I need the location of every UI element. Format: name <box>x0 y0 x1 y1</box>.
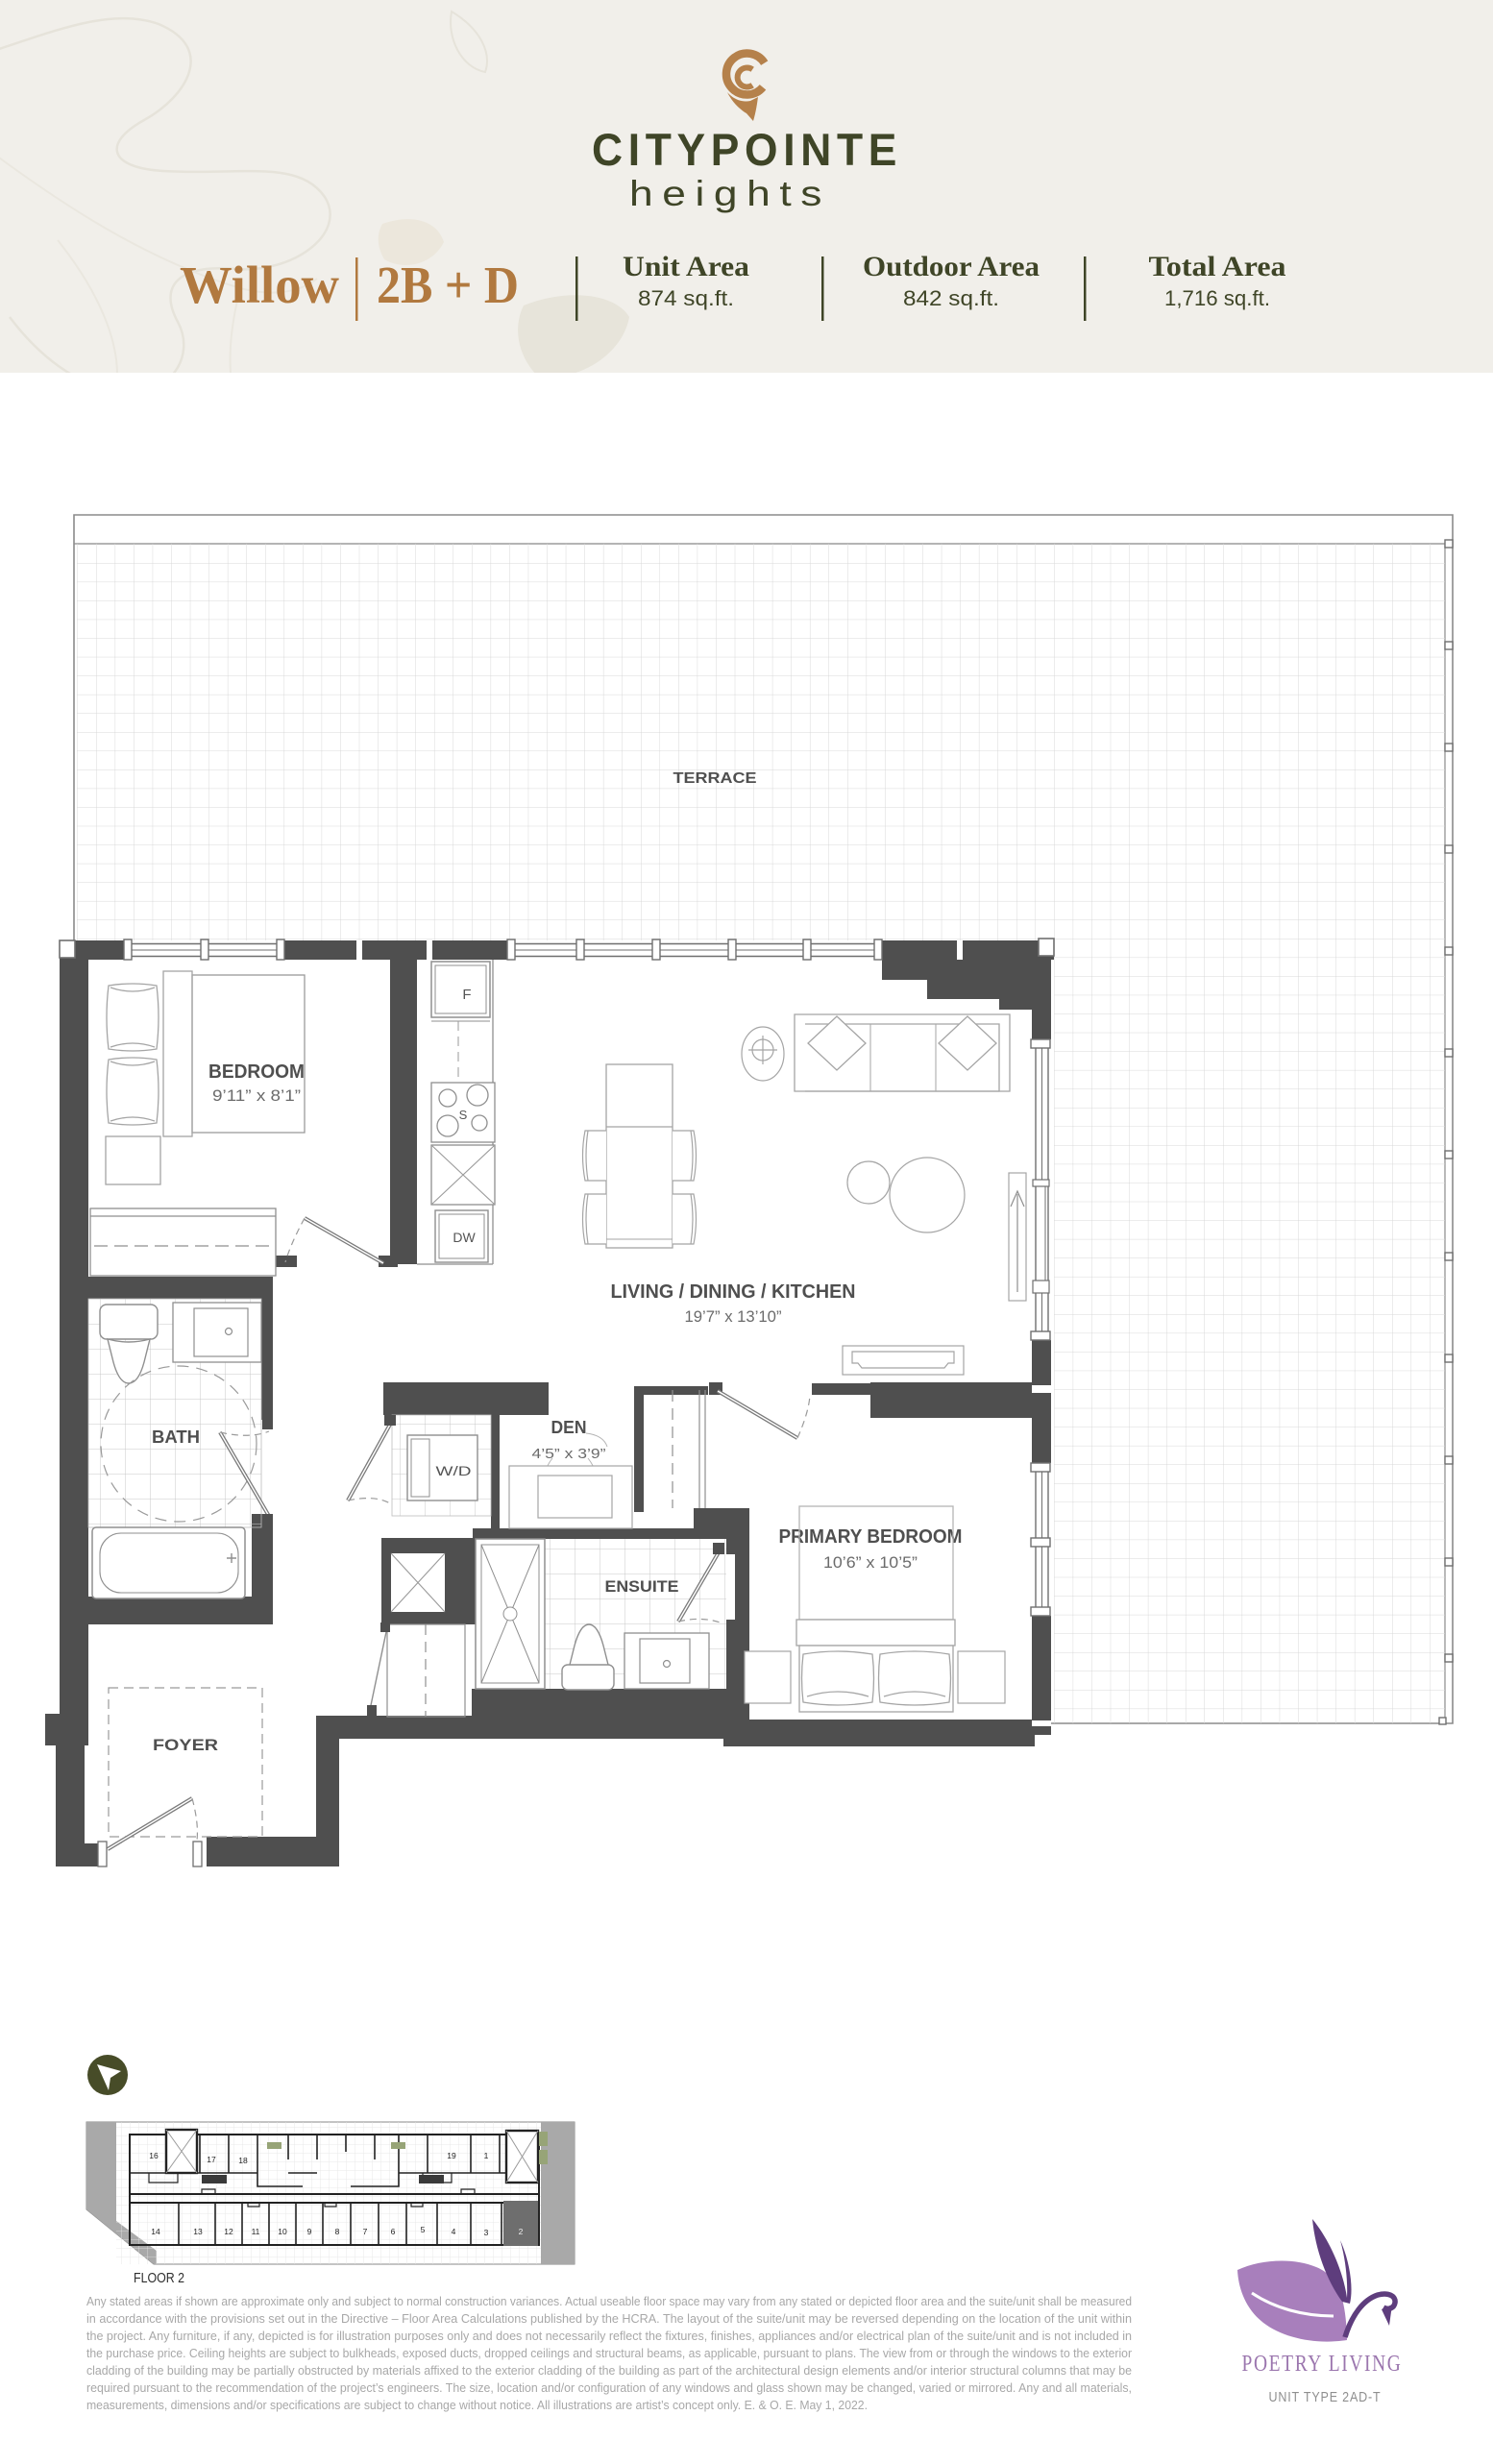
svg-text:cladding of the building may b: cladding of the building may be partiall… <box>86 2363 1132 2378</box>
svg-text:16: 16 <box>149 2151 159 2160</box>
svg-text:Outdoor Area: Outdoor Area <box>863 251 1040 282</box>
svg-text:BATH: BATH <box>152 1427 200 1447</box>
svg-text:DEN: DEN <box>551 1418 587 1437</box>
svg-text:1,716 sq.ft.: 1,716 sq.ft. <box>1164 286 1270 310</box>
svg-text:9’11” x 8’1”: 9’11” x 8’1” <box>212 1087 301 1105</box>
svg-text:BEDROOM: BEDROOM <box>208 1061 305 1083</box>
svg-text:11: 11 <box>252 2227 260 2236</box>
svg-text:8: 8 <box>335 2227 340 2236</box>
svg-text:7: 7 <box>363 2227 368 2236</box>
svg-text:the project. Any furniture, if: the project. Any furniture, if any, depi… <box>86 2329 1132 2343</box>
svg-text:18: 18 <box>238 2156 248 2165</box>
svg-text:Total Area: Total Area <box>1149 251 1286 282</box>
svg-text:2: 2 <box>519 2227 524 2236</box>
svg-text:FOYER: FOYER <box>153 1736 218 1754</box>
svg-text:TERRACE: TERRACE <box>673 770 757 787</box>
svg-text:4’5” x 3’9”: 4’5” x 3’9” <box>532 1446 606 1462</box>
svg-text:POETRY LIVING: POETRY LIVING <box>1242 2352 1403 2377</box>
svg-text:19’7” x 13’10”: 19’7” x 13’10” <box>685 1308 782 1326</box>
svg-text:Unit Area: Unit Area <box>623 251 749 282</box>
svg-text:14: 14 <box>151 2227 160 2236</box>
svg-text:S: S <box>459 1108 468 1122</box>
svg-text:heights: heights <box>629 174 831 213</box>
svg-text:required pursuant to the recom: required pursuant to the recommendation … <box>86 2380 1132 2395</box>
svg-text:CITYPOINTE: CITYPOINTE <box>592 124 902 175</box>
svg-text:1: 1 <box>484 2151 489 2160</box>
svg-text:DW: DW <box>453 1230 476 1245</box>
svg-text:874 sq.ft.: 874 sq.ft. <box>638 286 734 310</box>
svg-text:UNIT TYPE 2AD-T: UNIT TYPE 2AD-T <box>1269 2389 1382 2405</box>
svg-text:PRIMARY BEDROOM: PRIMARY BEDROOM <box>779 1526 963 1548</box>
svg-text:10: 10 <box>278 2227 287 2236</box>
svg-text:19: 19 <box>447 2151 456 2160</box>
svg-text:measurements, dimensions and/o: measurements, dimensions and/or specific… <box>86 2398 868 2412</box>
svg-text:13: 13 <box>193 2227 203 2236</box>
svg-text:4: 4 <box>452 2227 456 2236</box>
svg-text:17: 17 <box>207 2155 216 2164</box>
svg-text:Any stated areas if shown are: Any stated areas if shown are approximat… <box>86 2294 1132 2308</box>
svg-text:LIVING / DINING / KITCHEN: LIVING / DINING / KITCHEN <box>611 1281 856 1303</box>
svg-text:5: 5 <box>421 2225 426 2234</box>
svg-text:3: 3 <box>484 2228 489 2237</box>
svg-text:842 sq.ft.: 842 sq.ft. <box>903 286 999 310</box>
svg-text:F: F <box>462 987 471 1003</box>
svg-text:10’6” x 10’5”: 10’6” x 10’5” <box>823 1554 918 1572</box>
svg-text:in accordance with the provisi: in accordance with the provisions set ou… <box>86 2311 1132 2326</box>
svg-text:Willow: Willow <box>180 256 339 314</box>
svg-text:FLOOR 2: FLOOR 2 <box>134 2270 184 2286</box>
svg-text:6: 6 <box>391 2227 396 2236</box>
svg-text:2B + D: 2B + D <box>377 256 519 314</box>
svg-text:ENSUITE: ENSUITE <box>605 1577 679 1596</box>
svg-text:the purchase price. Ceiling he: the purchase price. Ceiling heights are … <box>86 2346 1133 2360</box>
svg-text:9: 9 <box>307 2227 312 2236</box>
svg-text:12: 12 <box>224 2227 233 2236</box>
svg-text:W/D: W/D <box>436 1463 472 1478</box>
